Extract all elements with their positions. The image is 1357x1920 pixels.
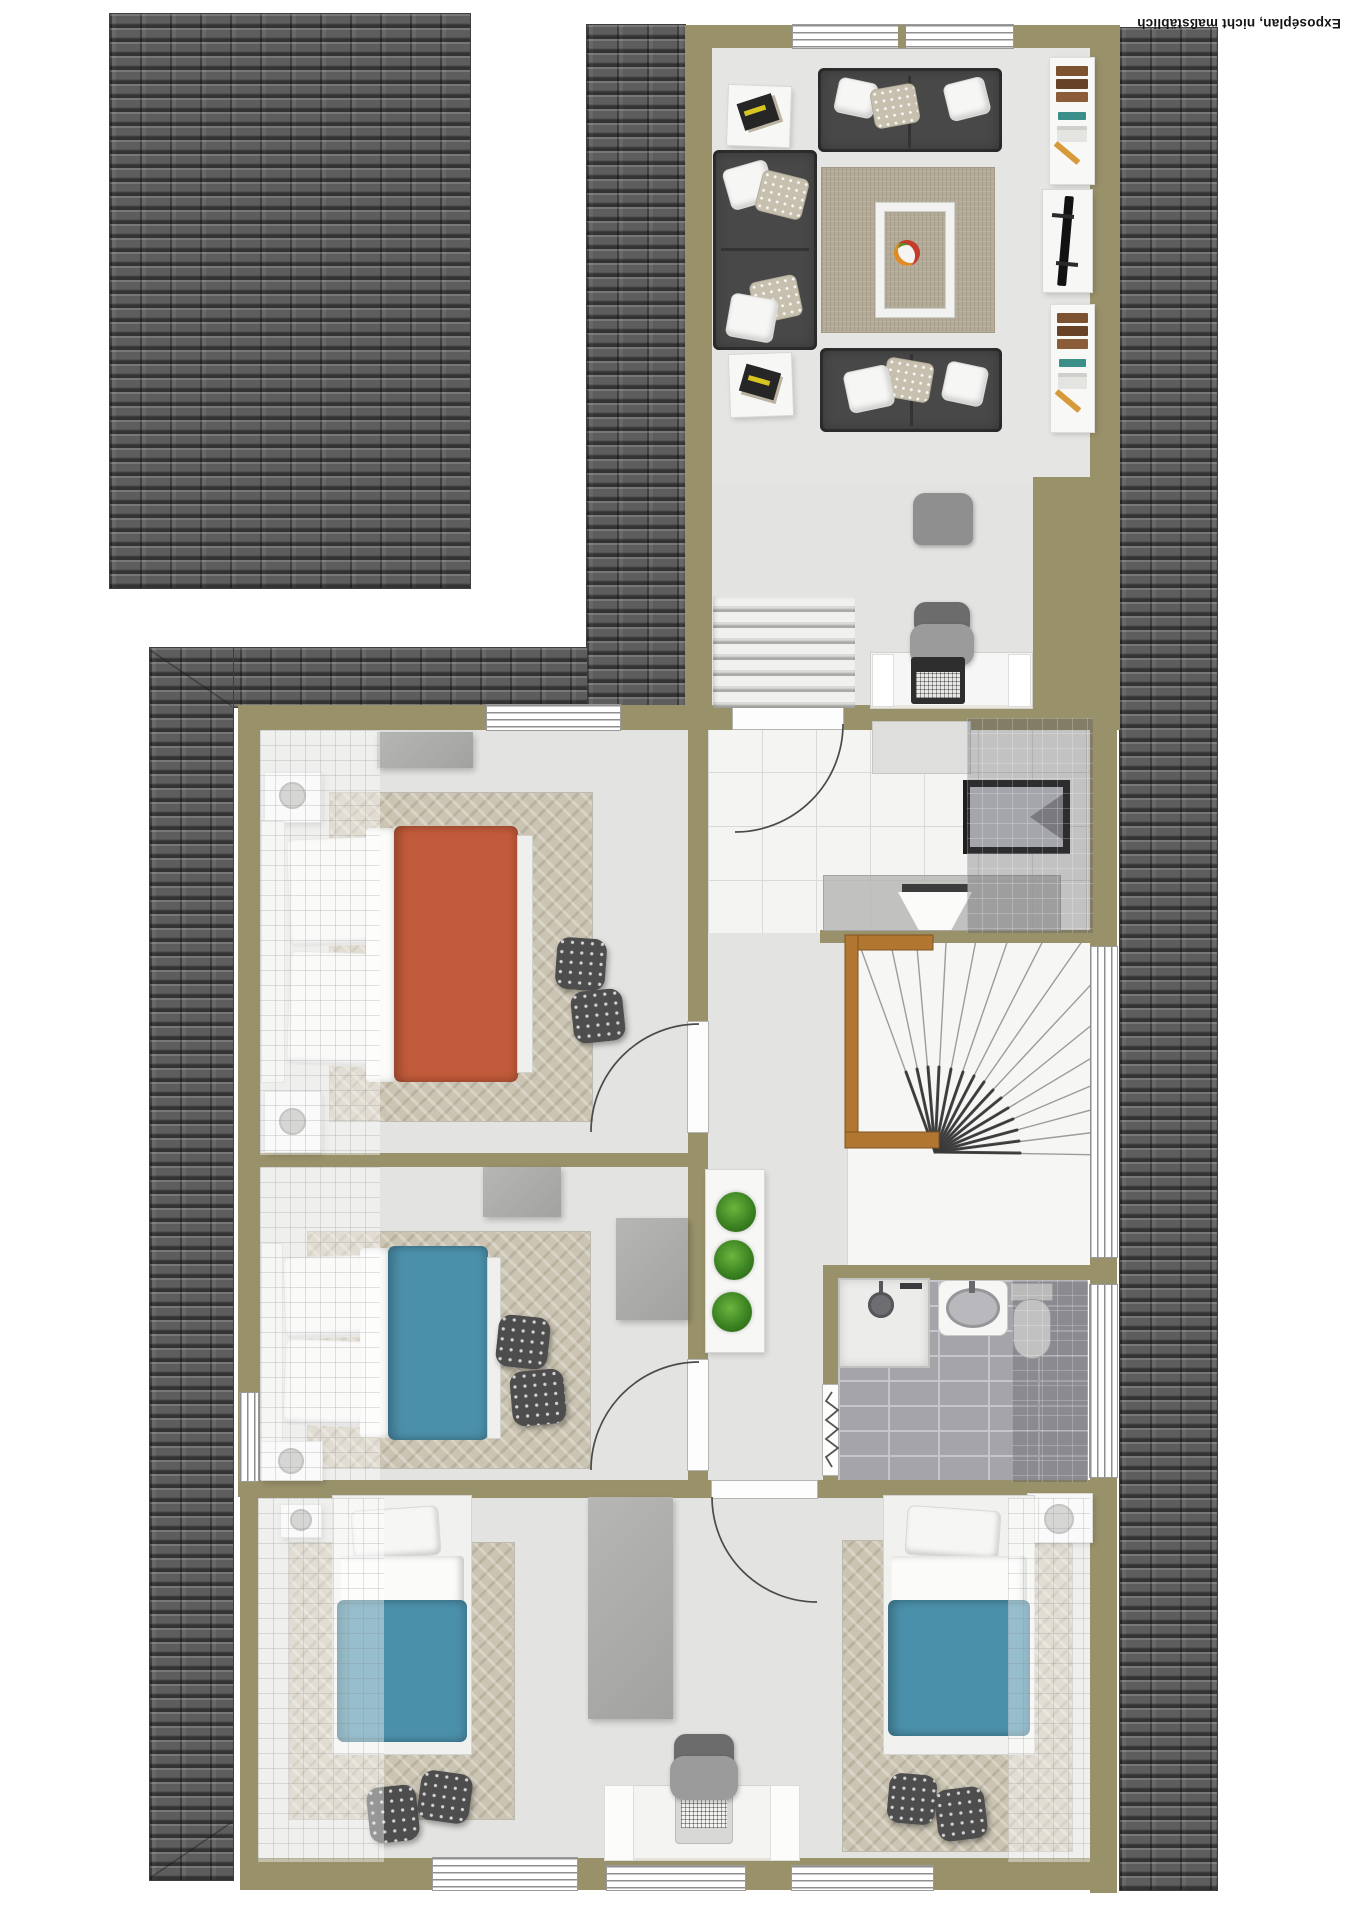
washbasin-bowl-icon (946, 1288, 1000, 1328)
books-brown (1057, 313, 1088, 323)
wall-bathroom-top (823, 1265, 1090, 1280)
desk-pedestal (1009, 655, 1030, 706)
bed-sheet-fold (891, 1556, 1027, 1606)
pouf (569, 987, 626, 1044)
door-hall-to-kids-room (712, 1481, 817, 1498)
shower-controls-icon (900, 1283, 922, 1289)
roof-slope-shade (258, 1498, 384, 1862)
door-bathroom (823, 1385, 838, 1475)
lounge-chair (913, 493, 973, 545)
pouf (933, 1785, 989, 1843)
hall-cabinet (873, 722, 970, 773)
bed-pillow (904, 1505, 1001, 1561)
door-bedroom-red (688, 1022, 708, 1132)
faucet-icon (969, 1281, 975, 1293)
window-bedroom-blue-left (240, 1393, 258, 1481)
bookshelf-1 (1050, 58, 1094, 184)
wall-mid-left (238, 705, 260, 1497)
window-kids-room-center (607, 1866, 745, 1890)
books-white-stack (1058, 373, 1087, 389)
window-stairwell-right-lower (1090, 1285, 1117, 1477)
roof-strip-upper (587, 25, 685, 708)
roof-slope-shade (1008, 1498, 1090, 1862)
door-bedroom-blue (688, 1360, 708, 1470)
pouf (509, 1368, 568, 1427)
roof-slope-shade (260, 730, 380, 1155)
stairwell-floor (848, 943, 1090, 1265)
window-bedroom-red-top (487, 705, 620, 730)
plant-icon (712, 1292, 752, 1332)
bookshelf-2 (1051, 305, 1094, 432)
roof-strip-right (1120, 28, 1217, 1890)
shower-head-icon (868, 1292, 894, 1318)
floor-plan: Exposéplan, nicht maßstäblich (0, 0, 1357, 1920)
plant-icon (716, 1192, 756, 1232)
roof-slope-shade-dark (1012, 1280, 1088, 1482)
roof-slope-shade-dark (967, 718, 1093, 933)
books-brown (1056, 66, 1088, 76)
disclaimer-text: Exposéplan, nicht maßstäblich (1137, 16, 1341, 31)
wardrobe-blue-room-right (616, 1218, 688, 1320)
straight-staircase (713, 596, 855, 708)
plant-icon (714, 1240, 754, 1280)
sofa-pillow-patterned (869, 82, 921, 129)
wall-red-blue-divider (250, 1153, 708, 1167)
wall-block-landing-right (1033, 477, 1120, 725)
window-living-mullion (898, 25, 906, 48)
wardrobe-blue-room-top (483, 1167, 561, 1217)
roof-block-top-left (110, 14, 470, 588)
sofa-pillow (940, 360, 989, 408)
bed-red-footboard (518, 836, 532, 1072)
wall-upper-left (685, 25, 712, 708)
books-teal (1058, 112, 1086, 120)
sofa-pillow (725, 292, 780, 344)
dresser-red-room (377, 732, 473, 768)
desk-pedestal (771, 1786, 799, 1860)
books-white-stack (1057, 126, 1087, 142)
bed-red-duvet (394, 826, 518, 1082)
shower-arm-icon (879, 1281, 883, 1295)
laptop-keyboard (681, 1800, 727, 1828)
desk-chair-seat (670, 1756, 738, 1800)
pouf (416, 1769, 474, 1826)
fruit-bowl-icon (894, 240, 920, 266)
sofa-divider (721, 248, 809, 251)
desk-pedestal (605, 1786, 633, 1860)
roof-slope-shade (260, 1167, 380, 1480)
books-teal (1059, 359, 1086, 367)
door-landing-to-hall (733, 706, 843, 729)
wall-lower-left (240, 1480, 258, 1875)
bed-blue-duvet (388, 1246, 488, 1440)
window-stairwell-right-upper (1090, 947, 1117, 1257)
pouf (886, 1772, 938, 1826)
pouf (494, 1313, 551, 1370)
window-kids-room-right (792, 1866, 933, 1890)
desk-pedestal (873, 655, 893, 706)
pouf (554, 936, 608, 991)
laptop-keyboard (916, 672, 960, 698)
roof-strip-lower-left (150, 648, 233, 1880)
tall-wardrobe (588, 1497, 673, 1719)
window-kids-room-left (433, 1858, 577, 1890)
console-dark-bar (902, 884, 968, 892)
